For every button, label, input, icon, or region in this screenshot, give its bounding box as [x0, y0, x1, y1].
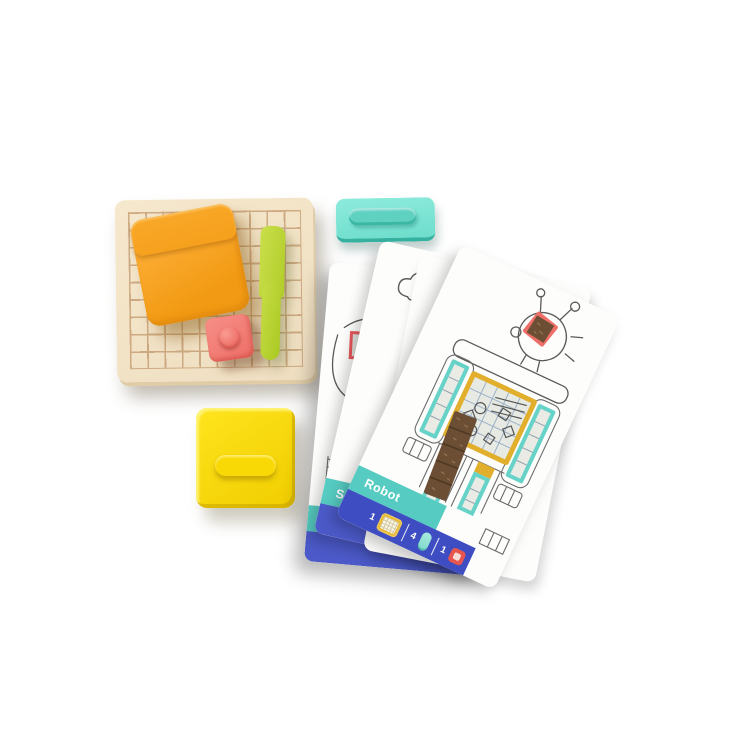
spreader-handle — [260, 282, 281, 360]
yellow-storage-case — [196, 408, 295, 508]
material-count: 4 — [409, 530, 418, 542]
spreader-tool — [257, 226, 286, 361]
red-sand-stamp — [204, 313, 255, 363]
yellow-case-handle — [215, 455, 276, 476]
product-photo-scene: Sand Castle — [0, 0, 750, 750]
material-count: 1 — [368, 511, 377, 523]
material-count: 1 — [439, 544, 448, 556]
yellow-grid-plate-icon — [376, 511, 404, 538]
sand-block-on-head — [519, 308, 561, 350]
stamp-knob — [218, 326, 242, 350]
teal-strip-icon — [416, 530, 433, 551]
orange-sand-pouch — [129, 202, 252, 328]
red-square-icon — [447, 546, 467, 566]
teal-storage-case — [336, 197, 436, 243]
teal-case-handle — [349, 207, 416, 225]
